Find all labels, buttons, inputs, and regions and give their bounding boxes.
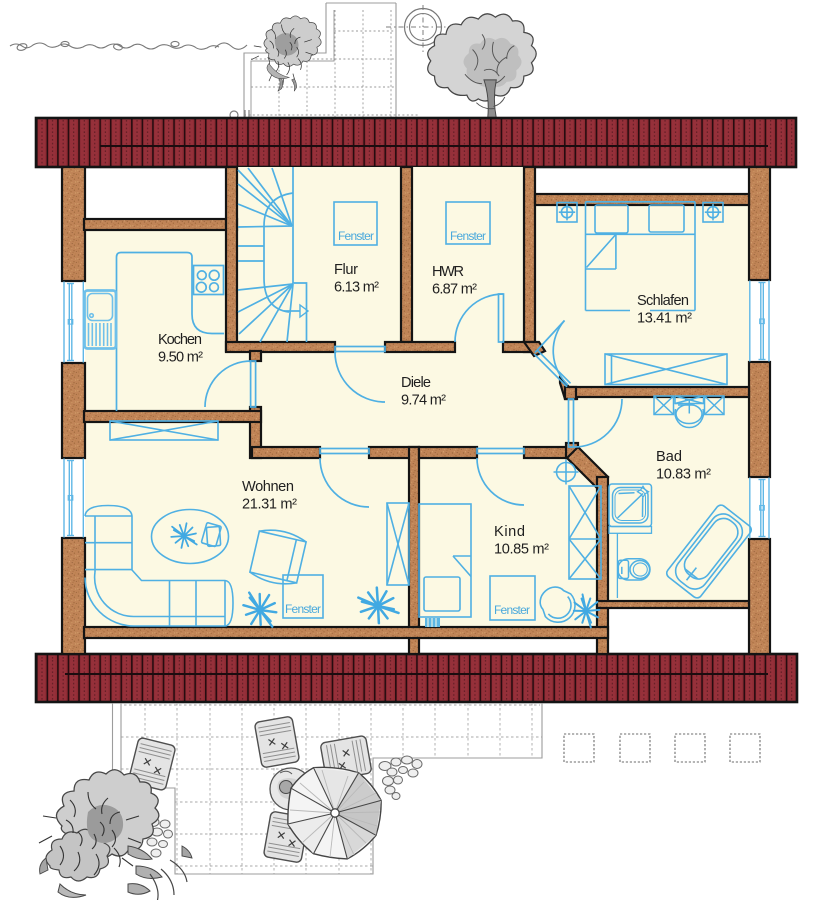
svg-text:21.31 m²: 21.31 m² bbox=[242, 497, 297, 513]
svg-text:9.74 m²: 9.74 m² bbox=[401, 393, 446, 409]
svg-text:Diele: Diele bbox=[401, 375, 431, 391]
svg-text:Fenster: Fenster bbox=[338, 229, 374, 243]
svg-text:9.50 m²: 9.50 m² bbox=[158, 350, 203, 366]
svg-text:Fenster: Fenster bbox=[450, 229, 486, 243]
svg-text:Fenster: Fenster bbox=[285, 602, 321, 616]
svg-text:HWR: HWR bbox=[432, 264, 464, 280]
svg-text:Fenster: Fenster bbox=[494, 603, 530, 617]
svg-text:Kochen: Kochen bbox=[158, 332, 202, 348]
svg-text:Kind: Kind bbox=[494, 524, 525, 540]
svg-text:Schlafen: Schlafen bbox=[637, 293, 689, 309]
svg-text:6.13 m²: 6.13 m² bbox=[334, 280, 379, 296]
svg-text:13.41 m²: 13.41 m² bbox=[637, 311, 692, 327]
svg-text:10.83 m²: 10.83 m² bbox=[656, 467, 711, 483]
svg-text:10.85 m²: 10.85 m² bbox=[494, 542, 549, 558]
svg-text:Bad: Bad bbox=[656, 449, 682, 465]
svg-text:Flur: Flur bbox=[334, 262, 358, 278]
svg-text:Wohnen: Wohnen bbox=[242, 479, 294, 495]
svg-text:6.87 m²: 6.87 m² bbox=[432, 282, 477, 298]
